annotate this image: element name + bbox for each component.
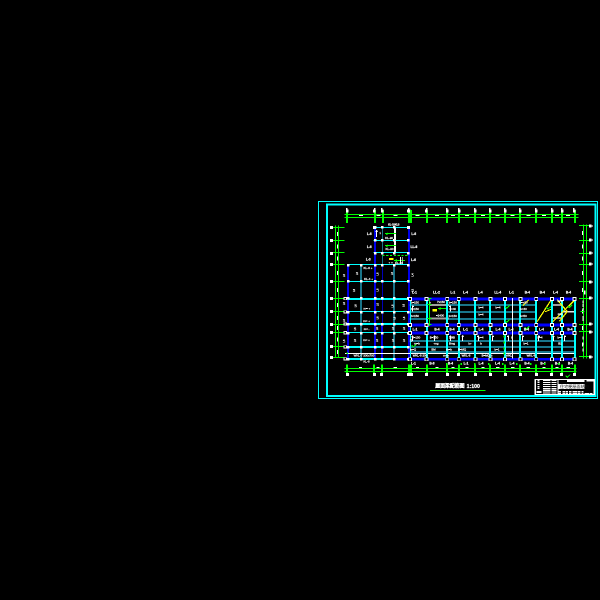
- svg-text:m=..: m=..: [364, 327, 370, 331]
- svg-text:B-4: B-4: [524, 327, 529, 331]
- svg-text:L-1: L-1: [450, 290, 455, 294]
- svg-text:L-4: L-4: [510, 362, 515, 366]
- svg-text:b=4: b=4: [558, 299, 563, 303]
- svg-text:B=MQ: B=MQ: [458, 348, 467, 352]
- svg-text:b=+50: b=+50: [519, 301, 528, 305]
- svg-text:L-4: L-4: [478, 290, 483, 294]
- svg-text:L-1: L-1: [412, 290, 417, 294]
- svg-text:WKL: WKL: [506, 353, 513, 357]
- svg-text:L-4: L-4: [539, 327, 544, 331]
- svg-text:B-4: B-4: [566, 290, 571, 294]
- svg-text:b=4: b=4: [496, 306, 501, 310]
- svg-text:BM: BM: [431, 348, 436, 352]
- svg-text:mtb: mtb: [558, 312, 563, 316]
- svg-text:L-6: L-6: [367, 245, 372, 249]
- svg-text:L-3: L-3: [366, 258, 371, 262]
- svg-text:L-1: L-1: [509, 290, 514, 294]
- svg-text:L-4: L-4: [479, 362, 484, 366]
- svg-text:=1400: =1400: [436, 314, 445, 318]
- svg-text:屋面梁配筋图: 屋面梁配筋图: [435, 382, 464, 389]
- svg-text:L-6: L-6: [411, 232, 416, 236]
- svg-text:+ +: + +: [389, 261, 394, 265]
- svg-text:L-4: L-4: [479, 327, 484, 331]
- svg-text:住宅梗屋面结构: 住宅梗屋面结构: [560, 383, 589, 389]
- svg-text:KL-30: KL-30: [395, 261, 403, 265]
- svg-text:B-4: B-4: [568, 362, 573, 366]
- svg-text:Bmg: Bmg: [449, 342, 455, 346]
- svg-text:m= +: m= +: [363, 338, 370, 342]
- svg-text:b=150: b=150: [411, 307, 420, 311]
- svg-text:b=50: b=50: [520, 314, 527, 318]
- svg-text:b=4: b=4: [479, 336, 484, 340]
- svg-text:L-4: L-4: [509, 327, 514, 331]
- svg-text:b=4: b=4: [558, 336, 563, 340]
- svg-text:KL-30: KL-30: [385, 236, 393, 240]
- svg-text:B1: B1: [558, 342, 562, 346]
- svg-text:m= +: m= +: [363, 306, 370, 310]
- svg-text:b=40: b=40: [450, 307, 457, 311]
- svg-text:7x150: 7x150: [437, 300, 445, 304]
- svg-text:KL-6 +: KL-6 +: [364, 266, 373, 270]
- svg-text:L-1: L-1: [411, 362, 416, 366]
- svg-text:m=b: m=b: [446, 348, 452, 352]
- svg-text:L-4: L-4: [554, 327, 559, 331]
- svg-text:LL-6: LL-6: [411, 245, 418, 249]
- svg-text:B-4: B-4: [524, 362, 529, 366]
- svg-text:WKL-8: WKL-8: [462, 353, 471, 357]
- svg-text:L-1: L-1: [463, 327, 468, 331]
- svg-text:WKL-7 300x700: WKL-7 300x700: [354, 353, 375, 357]
- svg-text:b=4: b=4: [479, 312, 484, 316]
- svg-text:-mg: -mg: [434, 342, 439, 346]
- svg-text:b=1: b=1: [495, 348, 500, 352]
- svg-text:L-6: L-6: [367, 232, 372, 236]
- svg-text:b+: b+: [468, 342, 472, 346]
- svg-text:b=150: b=150: [449, 314, 458, 318]
- svg-text:WKL-8: WKL-8: [527, 353, 536, 357]
- svg-text:LL-2: LL-2: [433, 290, 440, 294]
- svg-text:L-1: L-1: [464, 362, 469, 366]
- svg-text:b=1: b=1: [524, 342, 529, 346]
- svg-text:KL-30: KL-30: [385, 247, 393, 251]
- svg-text:B-4: B-4: [540, 290, 545, 294]
- svg-text:1:100: 1:100: [467, 384, 480, 390]
- svg-text:B=MQ b: B=MQ b: [482, 353, 493, 357]
- svg-text:L-1: L-1: [413, 327, 418, 331]
- svg-text:B-3: B-3: [429, 362, 434, 366]
- svg-text:b=150: b=150: [411, 314, 420, 318]
- svg-text:b=150: b=150: [411, 301, 420, 305]
- svg-text:KL-4 +: KL-4 +: [364, 277, 373, 281]
- svg-text:B-4: B-4: [525, 290, 530, 294]
- svg-text:L-4: L-4: [496, 327, 501, 331]
- svg-text:m=b: m=b: [414, 342, 420, 346]
- svg-text:B-4: B-4: [434, 327, 439, 331]
- svg-text:LL-4: LL-4: [494, 290, 501, 294]
- svg-text:KL-6: KL-6: [363, 359, 370, 363]
- svg-text:m=Q: m=Q: [410, 348, 417, 352]
- svg-text:B-4: B-4: [449, 327, 454, 331]
- svg-text:L-6: L-6: [411, 258, 416, 262]
- svg-text:L4: L4: [410, 273, 414, 277]
- svg-text:L-4: L-4: [553, 290, 558, 294]
- svg-text:B-4: B-4: [567, 327, 572, 331]
- svg-text:m= +: m= +: [363, 319, 370, 323]
- svg-text:b=150: b=150: [449, 301, 458, 305]
- svg-text:B-4: B-4: [448, 362, 453, 366]
- svg-text:WKL-8 300: WKL-8 300: [413, 353, 428, 357]
- svg-text:b=40: b=40: [520, 307, 527, 311]
- svg-text:b=4: b=4: [479, 306, 484, 310]
- svg-text:KL-32KL3: KL-32KL3: [388, 224, 400, 227]
- svg-text:L-4: L-4: [495, 362, 500, 366]
- svg-text:L-4: L-4: [463, 290, 468, 294]
- svg-text:m-tb: m-tb: [443, 353, 449, 357]
